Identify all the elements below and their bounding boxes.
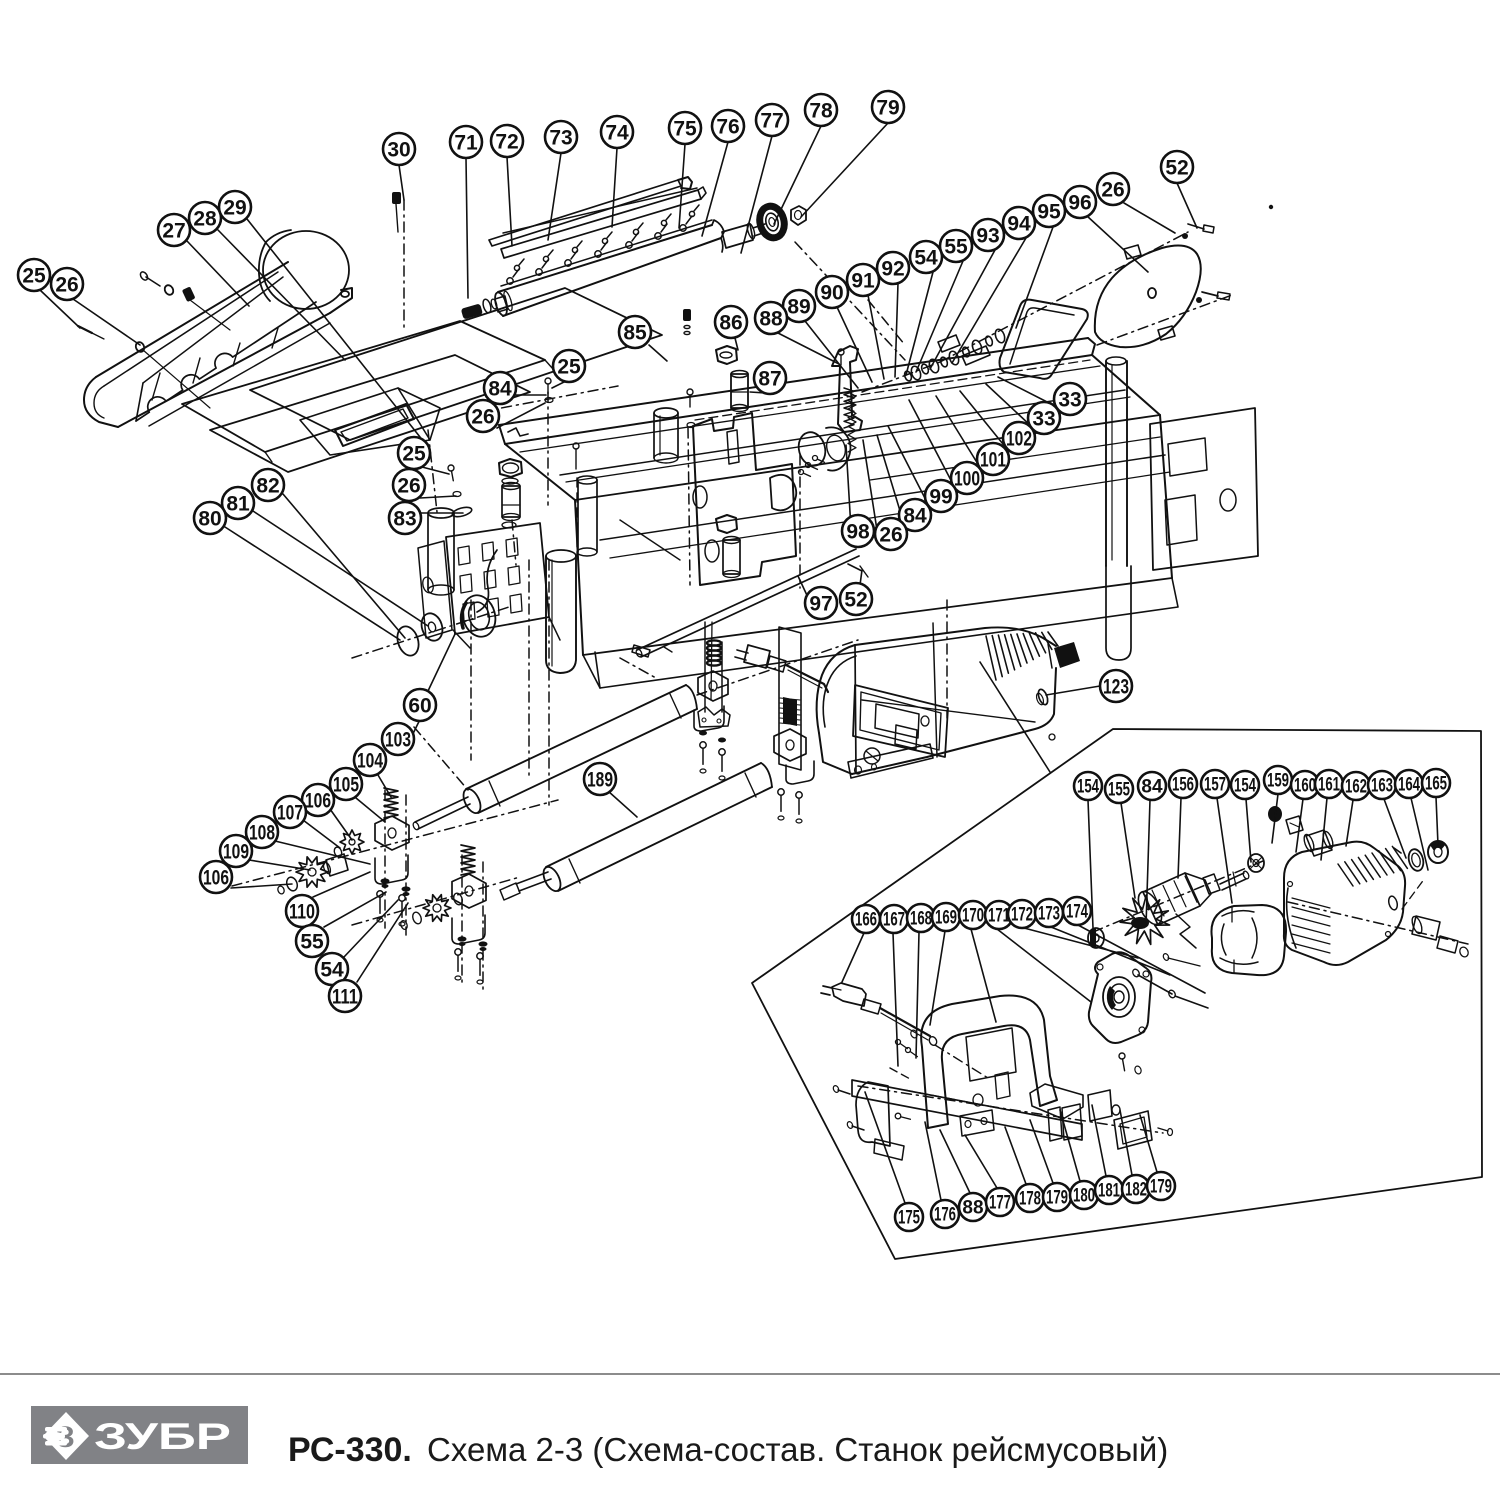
- svg-text:99: 99: [929, 485, 952, 508]
- svg-text:159: 159: [1267, 771, 1289, 792]
- svg-text:162: 162: [1345, 777, 1367, 798]
- svg-text:154: 154: [1077, 777, 1099, 798]
- svg-text:107: 107: [277, 801, 303, 824]
- svg-text:74: 74: [605, 121, 629, 144]
- svg-text:85: 85: [623, 321, 647, 344]
- svg-text:166: 166: [855, 910, 877, 931]
- svg-text:26: 26: [55, 273, 78, 296]
- svg-text:89: 89: [787, 295, 810, 318]
- svg-text:55: 55: [300, 930, 324, 953]
- svg-text:83: 83: [393, 507, 416, 530]
- svg-text:154: 154: [1234, 776, 1256, 797]
- svg-text:29: 29: [223, 196, 246, 219]
- svg-text:79: 79: [876, 96, 899, 119]
- svg-text:52: 52: [1165, 156, 1188, 179]
- svg-text:91: 91: [851, 269, 875, 292]
- svg-text:94: 94: [1007, 212, 1031, 235]
- svg-text:98: 98: [846, 520, 870, 543]
- svg-text:110: 110: [289, 900, 315, 923]
- svg-text:25: 25: [22, 264, 46, 287]
- svg-text:25: 25: [557, 355, 581, 378]
- svg-text:93: 93: [976, 224, 999, 247]
- svg-text:178: 178: [1019, 1189, 1041, 1210]
- svg-text:26: 26: [1101, 178, 1124, 201]
- svg-text:72: 72: [495, 130, 518, 153]
- svg-text:176: 176: [934, 1205, 956, 1226]
- svg-text:189: 189: [587, 768, 613, 791]
- svg-text:86: 86: [719, 311, 742, 334]
- svg-text:173: 173: [1038, 904, 1060, 925]
- svg-text:26: 26: [397, 474, 420, 497]
- svg-text:81: 81: [226, 492, 250, 515]
- svg-text:106: 106: [203, 866, 229, 889]
- svg-text:92: 92: [881, 257, 904, 280]
- svg-text:28: 28: [193, 207, 217, 230]
- svg-text:87: 87: [758, 367, 781, 390]
- svg-text:177: 177: [989, 1193, 1011, 1214]
- svg-text:123: 123: [1103, 675, 1129, 698]
- svg-text:174: 174: [1066, 902, 1088, 923]
- svg-text:105: 105: [333, 773, 359, 796]
- svg-text:82: 82: [256, 474, 279, 497]
- svg-text:55: 55: [944, 235, 968, 258]
- svg-text:165: 165: [1425, 774, 1447, 795]
- svg-text:111: 111: [332, 985, 358, 1008]
- svg-text:33: 33: [1032, 407, 1055, 430]
- svg-text:80: 80: [198, 507, 221, 530]
- svg-text:102: 102: [1006, 427, 1032, 450]
- svg-text:26: 26: [879, 523, 902, 546]
- svg-text:77: 77: [760, 109, 783, 132]
- svg-text:33: 33: [1058, 388, 1081, 411]
- svg-text:182: 182: [1125, 1180, 1147, 1201]
- svg-text:100: 100: [954, 467, 980, 490]
- svg-text:84: 84: [903, 504, 927, 527]
- svg-text:157: 157: [1204, 775, 1226, 796]
- svg-text:109: 109: [223, 840, 249, 863]
- svg-text:96: 96: [1068, 191, 1091, 214]
- svg-text:103: 103: [385, 728, 411, 751]
- svg-text:171: 171: [988, 906, 1010, 927]
- svg-text:170: 170: [962, 906, 984, 927]
- svg-text:180: 180: [1073, 1186, 1095, 1207]
- svg-text:88: 88: [962, 1198, 983, 1219]
- svg-text:26: 26: [471, 405, 494, 428]
- svg-text:Схема 2-3 (Схема-состав. Стано: Схема 2-3 (Схема-состав. Станок рейсмусо…: [427, 1431, 1168, 1468]
- svg-text:РС-330.: РС-330.: [288, 1431, 412, 1469]
- svg-text:75: 75: [673, 117, 697, 140]
- svg-text:54: 54: [320, 958, 344, 981]
- svg-text:168: 168: [910, 909, 932, 930]
- svg-text:169: 169: [935, 908, 957, 929]
- svg-text:179: 179: [1046, 1188, 1068, 1209]
- svg-text:ЗУБР: ЗУБР: [94, 1416, 231, 1457]
- svg-text:106: 106: [305, 789, 331, 812]
- svg-text:97: 97: [809, 592, 832, 615]
- svg-text:155: 155: [1108, 780, 1130, 801]
- svg-text:78: 78: [809, 99, 833, 122]
- svg-text:54: 54: [914, 246, 938, 269]
- svg-text:172: 172: [1011, 905, 1033, 926]
- svg-text:71: 71: [454, 131, 478, 154]
- svg-text:108: 108: [249, 821, 275, 844]
- svg-text:84: 84: [488, 377, 512, 400]
- svg-text:163: 163: [1371, 776, 1393, 797]
- svg-text:60: 60: [408, 694, 431, 717]
- svg-text:101: 101: [980, 448, 1006, 471]
- svg-text:90: 90: [820, 281, 843, 304]
- svg-text:181: 181: [1098, 1181, 1120, 1202]
- svg-text:27: 27: [162, 219, 185, 242]
- svg-text:161: 161: [1318, 775, 1340, 796]
- svg-text:76: 76: [716, 115, 739, 138]
- svg-text:95: 95: [1037, 200, 1061, 223]
- svg-text:104: 104: [357, 749, 383, 772]
- svg-text:25: 25: [402, 442, 426, 465]
- svg-text:73: 73: [549, 126, 572, 149]
- svg-text:52: 52: [844, 588, 867, 611]
- svg-text:30: 30: [387, 138, 410, 161]
- svg-text:156: 156: [1172, 775, 1194, 796]
- svg-text:164: 164: [1398, 775, 1420, 796]
- svg-text:88: 88: [759, 307, 783, 330]
- svg-text:167: 167: [883, 910, 905, 931]
- svg-text:84: 84: [1141, 777, 1163, 798]
- svg-text:175: 175: [898, 1208, 920, 1229]
- svg-text:160: 160: [1294, 776, 1316, 797]
- svg-text:179: 179: [1150, 1177, 1172, 1198]
